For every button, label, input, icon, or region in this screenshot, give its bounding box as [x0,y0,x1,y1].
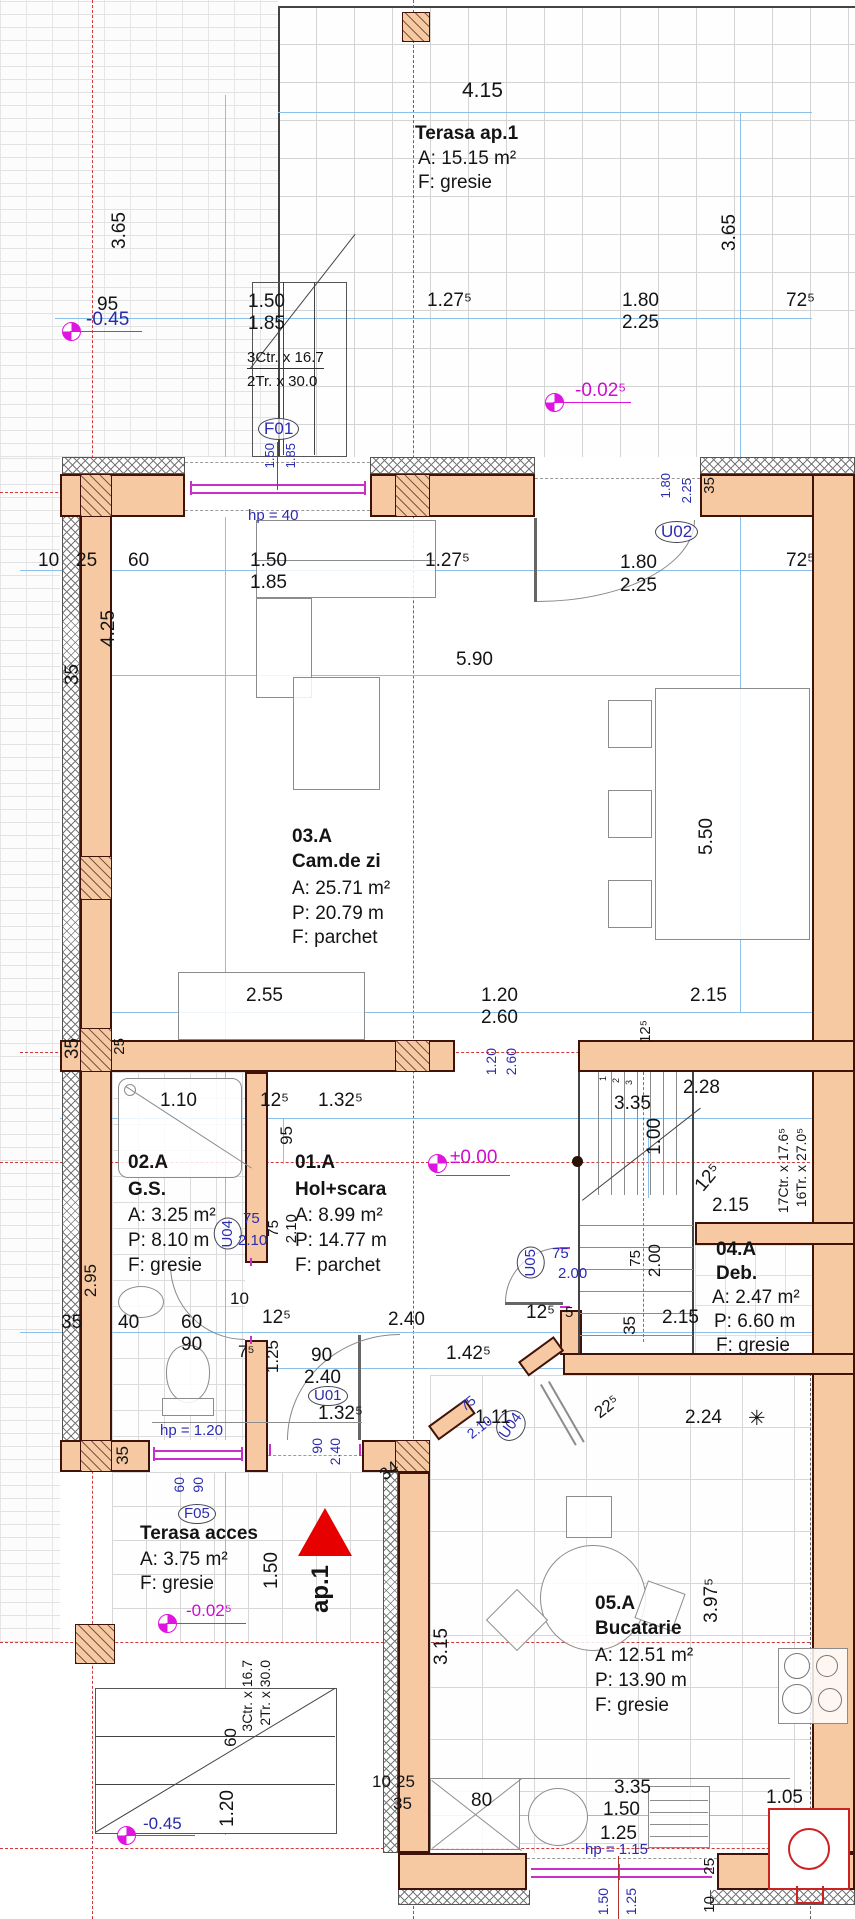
kitchen-sink [528,1788,588,1846]
dim-label: 1.50 [248,292,285,312]
dim-label: 1.80 [622,291,659,311]
window-jamb [364,481,366,495]
window-f05-opening [150,1440,245,1472]
stair-tread [580,1225,693,1226]
level-underline [553,402,631,403]
stair-tread [580,1291,693,1292]
dim-line [20,1332,855,1333]
room-area: A: 2.47 m² [712,1288,800,1308]
pier [395,474,430,517]
room-number: 01.A [295,1153,335,1173]
dim-label: 2.25 [680,478,694,503]
coffee-table [293,677,380,790]
dim-label: 1.85 [284,443,298,468]
pier [395,1440,430,1472]
burner [782,1684,812,1714]
insulation [62,457,185,474]
terrace-tiles [278,6,855,457]
dim-label: 60 [222,1728,240,1747]
dim-label: 2.60 [481,1008,518,1028]
room-number: 02.A [128,1153,168,1173]
dim-label: 60 [181,1313,202,1333]
stair-tread [580,1335,693,1336]
dim-label: 10 [230,1290,249,1308]
insulation [700,457,855,474]
pier [80,1440,112,1472]
stair-number: 3 [625,1080,634,1085]
dim-label: 1.05 [766,1788,803,1808]
pier [402,12,430,42]
dim-label: 12⁵ [638,1020,654,1043]
dim-label: 1.25 [624,1888,639,1915]
burner [816,1655,838,1677]
dim-label: 35 [63,1038,83,1059]
room-title: Deb. [716,1264,757,1284]
stair-cut-line [582,1108,701,1201]
opening-tag-u05: U05 [517,1247,545,1279]
star-symbol: ✳ [748,1408,766,1430]
dim-label: 2.40 [304,1368,341,1388]
dim-label: 2.40 [388,1310,425,1330]
window-jamb [153,1447,155,1461]
dim-label: 35 [621,1316,639,1335]
dim-label: 90 [310,1438,325,1454]
dim-label: 95 [278,1126,296,1145]
room-floor: F: gresie [595,1696,669,1716]
dim-label: 1.25 [264,1340,282,1373]
dim-label: 4.25 [99,610,119,647]
room-perimeter: P: 20.79 m [292,904,384,924]
room-title: Hol+scara [295,1180,386,1200]
stair-note: 2Tr. x 30.0 [247,374,317,390]
dim-label: 2.25 [620,576,657,596]
dim-label: 2.10 [284,1214,300,1243]
room-area: A: 15.15 m² [418,149,516,169]
dim-label: 2.00 [646,1244,664,1277]
dim-label: 90 [311,1346,332,1366]
dim-label: 1.85 [248,314,285,334]
room-area: A: 8.99 m² [295,1206,383,1226]
room-area: A: 3.75 m² [140,1550,228,1570]
dining-chair [608,700,652,748]
dim-label: 95 [97,295,118,315]
dim-label: 1.50 [603,1800,640,1820]
sill-height: hp = 1.20 [160,1423,223,1439]
dim-label: 2.28 [683,1078,720,1098]
dim-label: 2.25 [622,313,659,333]
dining-chair [608,880,652,928]
opening-tag-f01: F01 [258,418,299,440]
door-u02-opening [535,457,700,517]
sill-height: hp = 40 [248,508,298,524]
stair-tread [598,1072,599,1195]
dining-table [655,688,810,940]
dim-label: 1.20 [218,1790,238,1827]
dim-label: 60 [172,1477,187,1493]
dim-label: 2.60 [504,1048,519,1075]
door-jamb [269,1444,271,1456]
dim-label: 2.24 [685,1408,722,1428]
room-floor: F: gresie [128,1256,202,1276]
dim-label: 10 [38,551,59,571]
room-number: 04.A [716,1240,756,1260]
dim-label: 2.10 [238,1233,267,1249]
dim-label: 12⁵ [526,1303,555,1323]
door-head-line [268,1455,362,1456]
room-floor: F: gresie [418,173,492,193]
dim-label: 7⁵ [238,1343,255,1361]
dim-label: 1.00 [645,1118,665,1155]
level-underline [436,1175,510,1176]
dim-label: 72⁵ [786,291,815,311]
dim-label: 35 [61,1313,82,1333]
pier-footing [75,1624,115,1664]
room-area: A: 3.25 m² [128,1206,216,1226]
level-underline [70,331,142,332]
dim-line [55,318,812,319]
room-floor: F: gresie [716,1336,790,1356]
dim-label: 5.50 [697,818,717,855]
dim-label: 2.40 [328,1438,343,1465]
dim-label: 2.15 [690,986,727,1006]
room-title: G.S. [128,1180,166,1200]
pier [80,856,112,900]
dim-label: 3.65 [720,214,740,251]
dim-label: 80 [471,1791,492,1811]
dim-label: 75 [266,1220,282,1237]
dim-label: 35 [702,477,718,494]
dim-label: 1.32⁵ [318,1404,363,1424]
dim-label: 35 [393,1795,412,1813]
stair-tread [637,1072,638,1195]
stair-line [95,1784,335,1785]
stair-wall-line [578,1072,580,1353]
dim-label: 1.50 [596,1888,611,1915]
insulation [710,1888,855,1905]
boiler-circle [788,1828,830,1870]
dim-label: 25 [702,1858,718,1875]
stair-tread [580,1247,693,1248]
dim-label: 1.20 [484,1048,499,1075]
dining-chair [608,790,652,838]
dim-label: 35 [63,664,83,685]
room-title: Bucatarie [595,1619,682,1639]
dim-label: 3.65 [110,212,130,249]
stair-tread [676,1072,677,1195]
dim-label: 5.90 [456,650,493,670]
opening-tag-f05: F05 [178,1504,216,1524]
dim-label: 1.27⁵ [427,291,472,311]
dim-label: 2.00 [558,1266,587,1282]
paver-ground-top-left [0,0,278,457]
pier [80,1028,112,1072]
dw-line [650,1812,708,1813]
dim-label: 72⁵ [786,551,815,571]
dim-label: 1.10 [160,1091,197,1111]
room-floor: F: gresie [140,1574,214,1594]
sill-line [527,1858,717,1859]
level-value: -0.45 [143,1815,182,1833]
opening-tag-u02: U02 [655,521,698,543]
wall-diagonal-1 [518,1336,564,1376]
shower-head [124,1084,136,1096]
dim-label: 40 [118,1313,139,1333]
dw-line [650,1800,708,1801]
tv-bench [178,972,365,1040]
room-perimeter: P: 8.10 m [128,1231,209,1251]
room-area: A: 12.51 m² [595,1646,693,1666]
stair-line [95,1736,335,1737]
dim-label: 75 [243,1211,260,1227]
dim-label: 2.15 [712,1196,749,1216]
f01-leader [277,442,278,490]
dim-label: 75 [628,1250,644,1267]
wall-bottom-1 [398,1853,527,1890]
dw-line [650,1824,708,1825]
dim-label: 75 [552,1246,569,1262]
dim-label: 12⁵ [260,1091,289,1111]
dishwasher [648,1786,710,1848]
dim-label: 1.50 [250,551,287,571]
boiler-notch [796,1886,824,1904]
floor-plan: 1 2 3 [0,0,855,1919]
stair-note: 2Tr. x 30.0 [258,1660,273,1726]
window-f05-glass [153,1450,242,1452]
dim-label: 12⁵ [262,1308,291,1328]
dim-label: 3.35 [614,1778,651,1798]
dim-label: 2.95 [82,1264,100,1297]
dim-label: 1.25 [600,1824,637,1844]
dim-label: 1.20 [481,986,518,1006]
door-jamb [359,1444,361,1456]
dim-label: 2.15 [662,1308,699,1328]
wall-top-1 [60,474,185,517]
dim-label: 60 [128,551,149,571]
dim-label: 25 [112,1038,128,1055]
door-jamb [250,1258,252,1266]
dim-label: 1.85 [250,573,287,593]
dim-label: 1.42⁵ [446,1344,491,1364]
window-kitchen-glass [531,1868,712,1870]
entrance-triangle [298,1508,352,1556]
dim-label: 25 [396,1773,415,1791]
dim-label: 25 [76,551,97,571]
stair-start-dot [572,1156,583,1167]
door-head-line [535,478,700,479]
window-jamb [190,481,192,495]
room-floor: F: parchet [292,928,378,948]
level-underline [125,1835,195,1836]
dim-label: 3.97⁵ [702,1578,722,1623]
dim-label: 2.55 [246,986,283,1006]
dim-label: 4.15 [462,80,503,102]
stair-note: 16Tr. x 27.0⁵ [794,1128,809,1207]
insulation [398,1888,530,1905]
dim-label: 1.50 [263,443,277,468]
dim-label: 3.35 [614,1094,651,1114]
stair-note: 3Ctr. x 16.7 [247,350,324,369]
kitchen-chair [566,1496,612,1538]
dim-label: 1.50 [262,1552,282,1589]
room-title: Terasa acces [140,1524,258,1544]
window-f05-glass [153,1458,242,1460]
window-kitchen-glass [531,1876,712,1878]
dim-label: 1.32⁵ [318,1091,363,1111]
entrance-label: ap.1 [308,1565,333,1613]
dim-label: 1.80 [620,553,657,573]
stair-note: 3Ctr. x 16.7 [240,1660,255,1732]
room-number: 05.A [595,1594,635,1614]
wall-kitchen-top [563,1353,855,1375]
room-area: A: 25.71 m² [292,879,390,899]
stair-number: 2 [612,1078,621,1083]
stair-number: 1 [599,1076,608,1081]
sill-height: hp = 1.15 [585,1842,648,1858]
paver-ground-left-strip [0,457,60,1642]
dim-label: 12⁵ [692,1160,726,1195]
dim-label: 35 [114,1446,132,1465]
stair-note: 17Ctr. x 17.6⁵ [776,1128,791,1213]
level-value: ±0.00 [450,1148,497,1168]
room-title: Cam.de zi [292,852,381,872]
window-leader [618,1856,619,1919]
insulation [370,457,535,474]
level-value: -0.02⁵ [186,1602,232,1620]
dim-label: 90 [191,1477,206,1493]
dw-line [650,1836,708,1837]
stair-tread [624,1072,625,1195]
terrace-top-line [278,6,855,8]
dim-label: 1.27⁵ [425,551,470,571]
room-perimeter: P: 13.90 m [595,1671,687,1691]
toilet-tank [162,1398,214,1416]
level-marker [428,1154,447,1173]
dim-line-vertical [225,95,226,1835]
exterior-stair-bottom [95,1688,337,1834]
dim-label: 1.80 [659,473,673,498]
room-number: 03.A [292,827,332,847]
burner [784,1653,810,1679]
wall-mid-2 [578,1040,855,1072]
dim-label: 10 [372,1773,391,1791]
window-jamb [241,1447,243,1461]
window-f01-glass [190,492,365,494]
dim-label: 3.15 [432,1628,452,1665]
level-value: -0.02⁵ [575,381,626,401]
dim-label: 90 [181,1335,202,1355]
pier [395,1040,430,1072]
room-floor: F: parchet [295,1256,381,1276]
dim-line [112,675,740,676]
burner [818,1688,842,1712]
room-perimeter: P: 6.60 m [714,1312,795,1332]
dim-label: 5 [565,1305,573,1321]
dim-label: 10 [702,1896,718,1913]
pier [80,474,112,517]
room-title: Terasa ap.1 [415,124,518,144]
stair-tread [580,1269,693,1270]
room-perimeter: P: 14.77 m [295,1231,387,1251]
wall-right [812,474,855,1853]
level-underline [166,1623,246,1624]
dim-line [278,112,812,113]
